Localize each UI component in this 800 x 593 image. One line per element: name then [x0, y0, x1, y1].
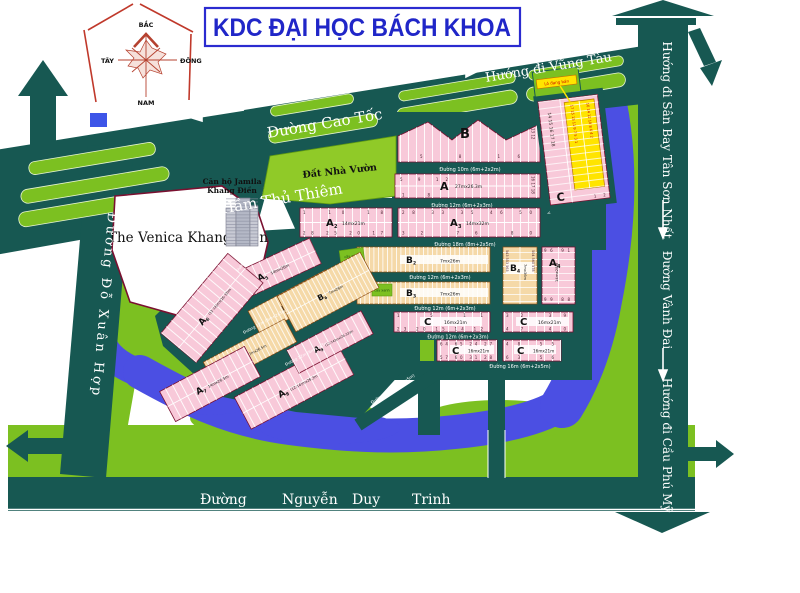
jamila-label-line1: Căn hộ Jamila — [203, 177, 262, 186]
street-label: Đường 12m (6m+2x3m) — [409, 274, 470, 281]
arrow-up-icon — [612, 0, 714, 25]
block-a2: A 2 14mx21m 1 10 18 28 25 20 17 — [300, 208, 392, 237]
block-dims: 7mx36m — [523, 264, 527, 280]
block-letter-sub: 2 — [413, 261, 416, 267]
jamila-label-line2: Khang Điền — [207, 186, 257, 195]
blue-marker — [90, 113, 107, 127]
block-c2: C 16mx21m 32 39 47 40 — [503, 312, 573, 332]
block-letter: A — [450, 218, 458, 229]
compass-rose-icon: BẮC NAM TÂY ĐÔNG — [84, 4, 202, 107]
ndt-word-3: Duy — [352, 492, 380, 508]
block-dims: 14mx21m — [342, 221, 365, 227]
plot-numbers: 13 12 — [531, 128, 536, 140]
cau-phu-my-label: Hướng đi Cầu Phú Mỹ — [660, 378, 675, 513]
block-dims: 16mx21m — [533, 349, 554, 354]
block-letter-sub: 2 — [334, 224, 338, 230]
plot-numbers: 543 553 563 — [505, 250, 509, 272]
street-label: Đường 16m (6m+2x5m) — [489, 363, 550, 370]
ndt-word-1: Đường — [200, 492, 247, 508]
block-letter-sub: 3 — [413, 294, 416, 300]
block-letter: B — [406, 256, 413, 266]
block-a3: A 3 14mx32m 28 33 35 46 50 32 76 80 — [398, 208, 540, 237]
block-dims: 14mx32m — [466, 221, 489, 227]
block-c1: C 16mx21m 1 5 11 23 20 15 14 12 — [394, 312, 490, 332]
compass-east-label: ĐÔNG — [180, 56, 202, 65]
street-label: Đường 10m (6m+2x2m) — [439, 166, 500, 173]
arrow-down-icon — [615, 512, 710, 533]
compass-north-label: BẮC — [139, 19, 154, 29]
compass-west-label: TÂY — [101, 56, 114, 65]
block-letter: B — [460, 127, 470, 142]
block-a1: A 27mx26.3m 5 9 12 16 17 18 1 8 — [395, 174, 540, 198]
ndt-word-4: Trinh — [412, 492, 451, 508]
block-dims: 16mx21m — [538, 320, 561, 326]
street-label: Đường 12m (6m+2x3m) — [427, 334, 488, 341]
block-a-right: A 4 14mx28m 96 91 99 88 — [542, 247, 575, 304]
block-letter-sub: 4 — [517, 269, 520, 275]
title-box: KDC ĐẠI HỌC BÁCH KHOA — [205, 8, 520, 46]
ndt-word-2: Nguyễn — [282, 491, 338, 508]
plot-numbers: 504 560 578 — [531, 250, 535, 272]
block-dims: 16mx21m — [468, 349, 489, 354]
block-b4: B 4 7mx36m 543 553 563 504 560 578 — [503, 247, 537, 304]
block-dims: 16mx21m — [444, 320, 467, 326]
block-c3: C 16mx21m 64 65 24 27 57 60 31 28 — [437, 340, 497, 361]
block-letter: A — [326, 218, 334, 229]
street-label: Đường 12m (6m+2x3m) — [414, 305, 475, 312]
green-strip-small-1 — [420, 340, 434, 361]
block-dims: 14mx28m — [554, 262, 559, 282]
plot-numbers: 16 17 18 — [531, 176, 536, 194]
plot-numbers: 57 60 31 28 — [440, 355, 492, 360]
block-b2: B 2 7mx26m — [357, 247, 490, 272]
vanh-dai-label: Đường Vành Đai — [660, 251, 674, 350]
block-letter: B — [406, 289, 413, 299]
block-letter: C — [556, 190, 566, 204]
street-connector-vertical — [488, 367, 505, 478]
page-title: KDC ĐẠI HỌC BÁCH KHOA — [213, 13, 511, 42]
compass-south-label: NAM — [138, 99, 155, 107]
map-svg: B 13 12 5 8 16 Đường 10m (6m+2x2m) A 27m… — [0, 0, 800, 593]
block-c4: C 16mx21m 48 55 63 56 — [503, 340, 561, 361]
block-dims: 7mx26m — [440, 259, 460, 265]
block-dims: 27mx26.3m — [455, 184, 482, 190]
plot-numbers: 64 65 24 27 — [440, 342, 492, 347]
block-letter-sub: 3 — [458, 224, 462, 230]
arrow-branch-icon — [688, 28, 722, 86]
block-dims: 7mx26m — [440, 292, 460, 298]
map-canvas: B 13 12 5 8 16 Đường 10m (6m+2x2m) A 27m… — [0, 0, 800, 593]
block-letter: B — [510, 264, 517, 274]
